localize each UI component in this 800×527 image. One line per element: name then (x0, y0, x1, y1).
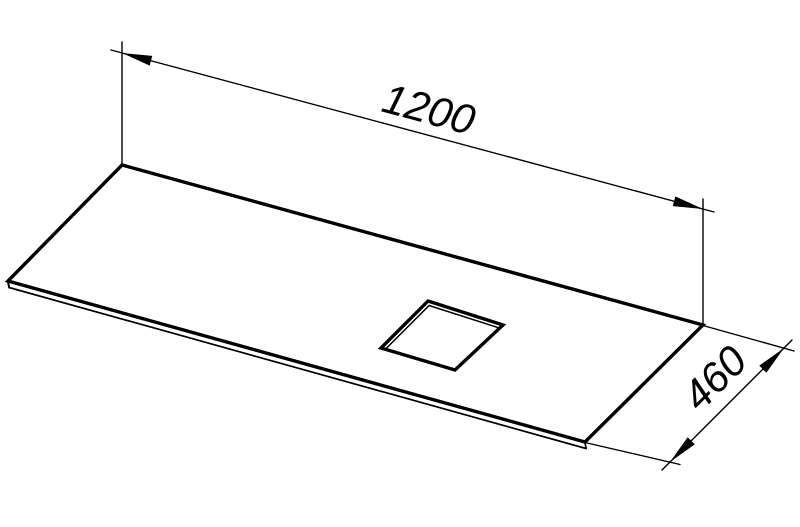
arrowhead-depth-lower (666, 437, 694, 465)
panel-thickness-left-connector (8, 282, 9, 288)
extension-line-depth-lower (585, 443, 680, 465)
drawing-canvas: 1200 460 (0, 0, 800, 527)
arrowhead-length-left (121, 48, 153, 65)
technical-drawing: 1200 460 (0, 0, 800, 527)
arrowhead-depth-upper (759, 344, 787, 372)
panel-thickness-right-connector (585, 443, 586, 449)
panel-top-face (8, 165, 703, 442)
dimension-label-depth: 460 (673, 336, 756, 419)
arrowhead-length-right (673, 196, 705, 213)
dimension-label-length: 1200 (378, 74, 481, 144)
